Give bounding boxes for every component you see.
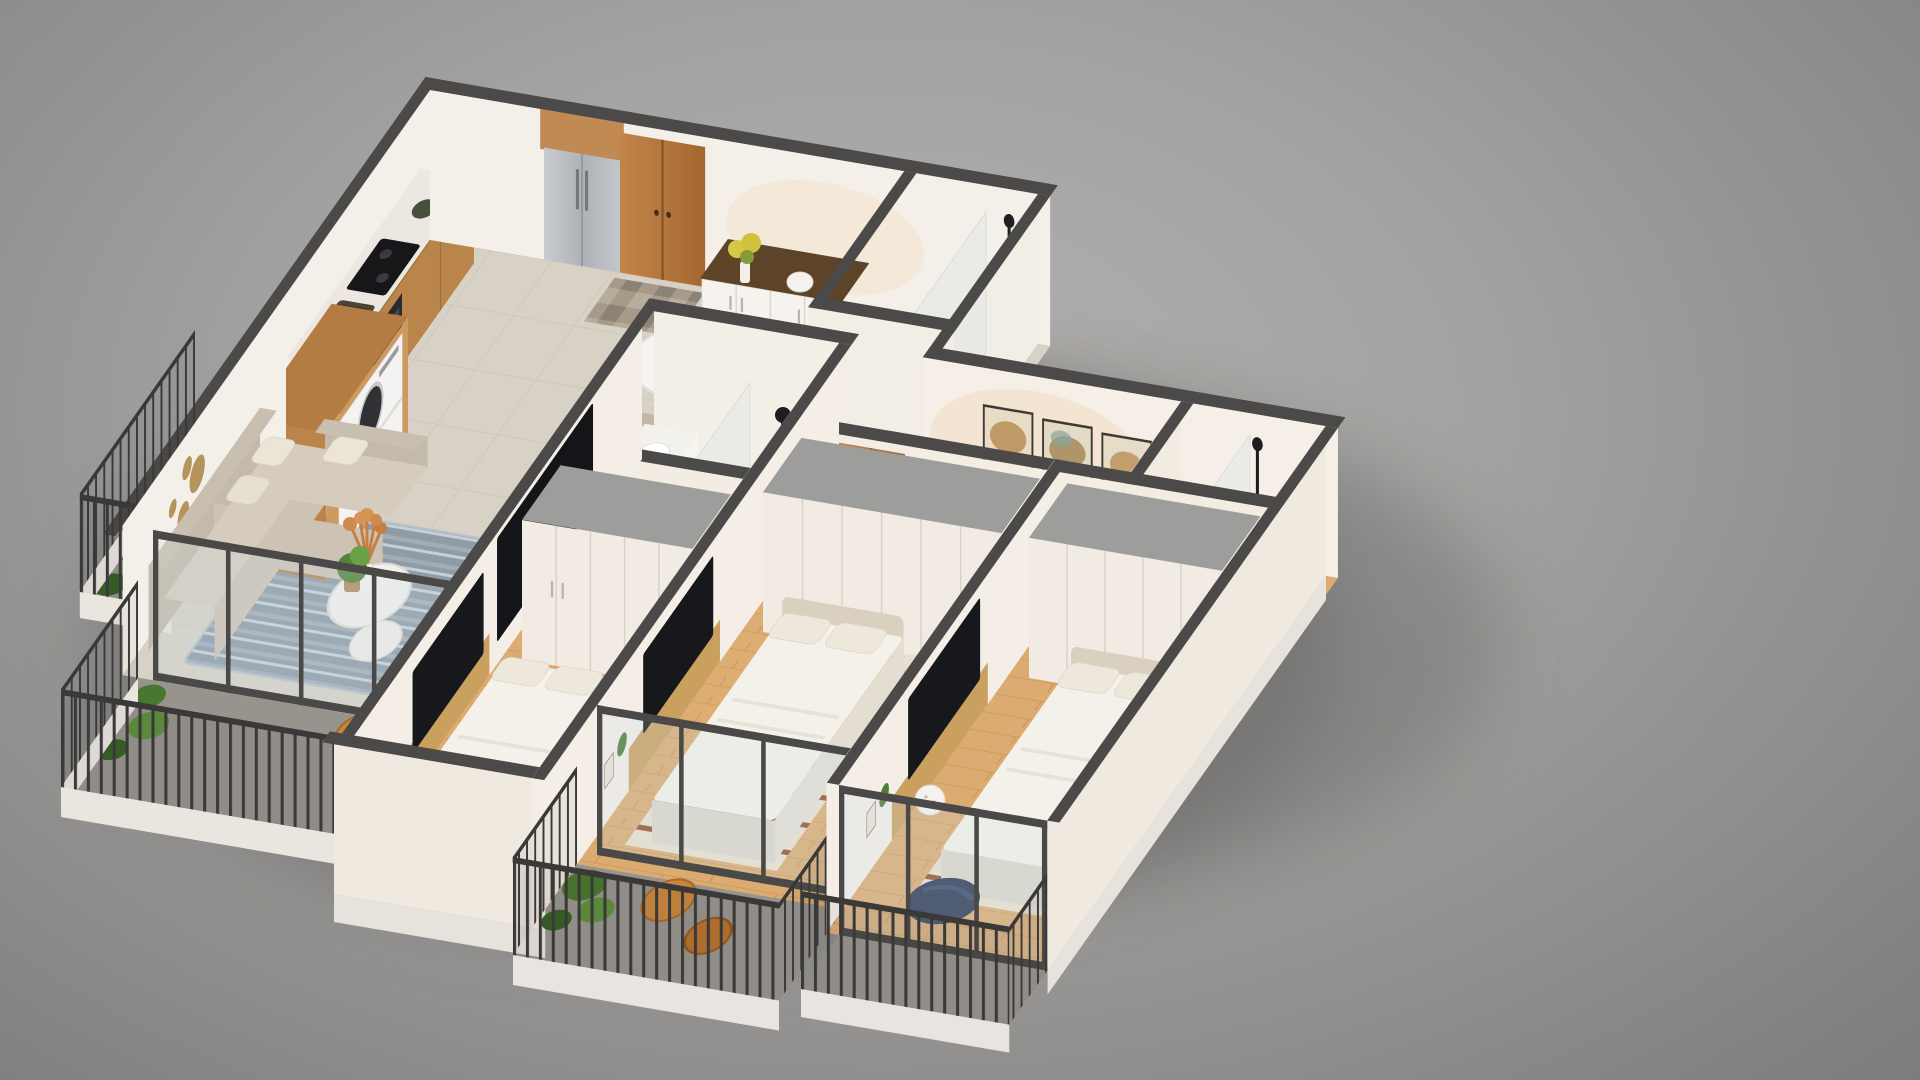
sideboard-jug [787, 272, 813, 292]
render-stage: 3D isometric apartment floor plan render [0, 0, 1920, 1080]
floorplan-render: 3D isometric apartment floor plan render [0, 0, 1920, 1080]
